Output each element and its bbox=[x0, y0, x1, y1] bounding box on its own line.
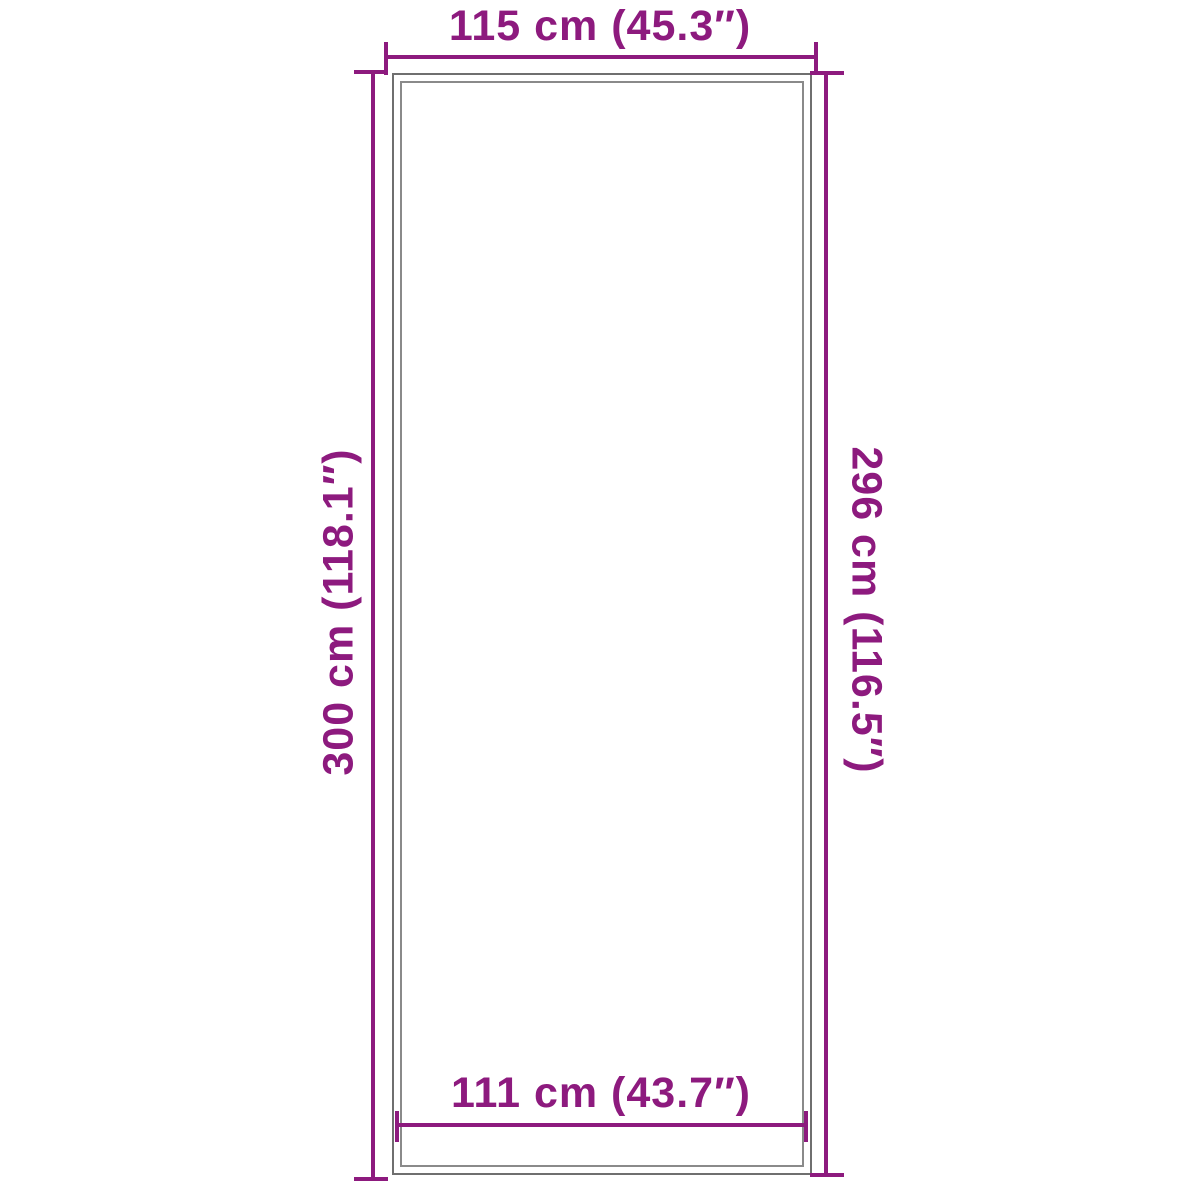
top-dimension-line bbox=[384, 55, 818, 59]
bottom-dimension-line bbox=[395, 1123, 808, 1127]
right-dimension-label: 296 cm (116.5″) bbox=[845, 446, 888, 773]
left-dimension-bottom-tick bbox=[354, 1177, 388, 1181]
right-dimension-line bbox=[824, 71, 828, 1177]
top-dimension-label: 115 cm (45.3″) bbox=[449, 5, 751, 48]
bottom-dimension-left-tick bbox=[395, 1111, 399, 1142]
mat-outer-outline bbox=[392, 73, 812, 1175]
right-dimension-top-tick bbox=[810, 71, 844, 75]
mat-inner-outline bbox=[400, 81, 804, 1167]
left-dimension-label: 300 cm (118.1″) bbox=[318, 448, 361, 775]
left-dimension-line bbox=[371, 70, 375, 1181]
product-dimension-diagram: 115 cm (45.3″) 300 cm (118.1″) 296 cm (1… bbox=[0, 0, 1200, 1200]
right-dimension-bottom-tick bbox=[810, 1173, 844, 1177]
left-dimension-top-tick bbox=[354, 70, 388, 74]
bottom-dimension-right-tick bbox=[804, 1111, 808, 1142]
bottom-dimension-label: 111 cm (43.7″) bbox=[451, 1072, 751, 1115]
